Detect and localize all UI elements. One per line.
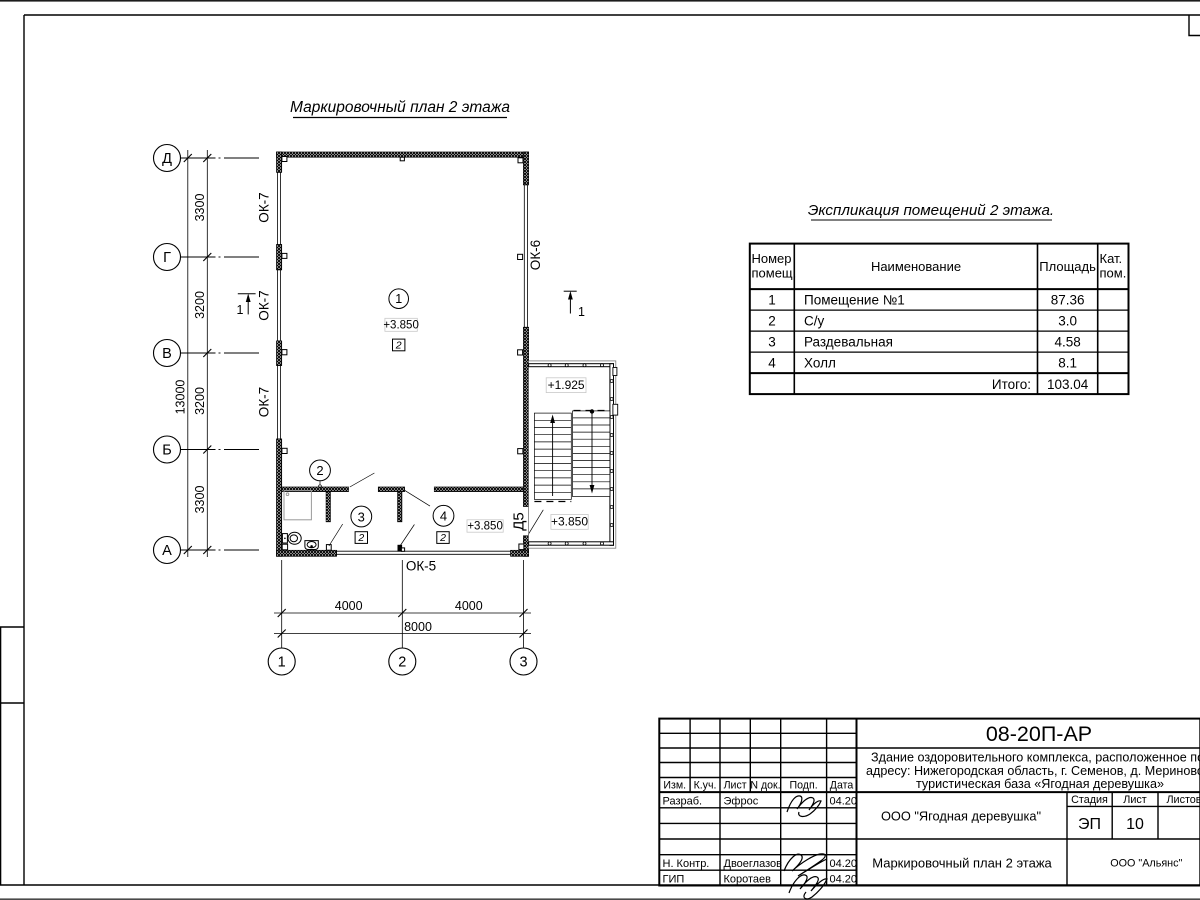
- svg-text:1: 1: [395, 292, 402, 306]
- svg-text:пом.: пом.: [1100, 266, 1127, 281]
- svg-text:2: 2: [395, 339, 402, 351]
- svg-text:Листов: Листов: [1166, 794, 1200, 806]
- svg-text:А: А: [162, 543, 172, 559]
- svg-text:04.20: 04.20: [830, 858, 858, 870]
- svg-text:3300: 3300: [193, 194, 207, 222]
- svg-text:3: 3: [519, 655, 527, 671]
- svg-text:Г: Г: [163, 250, 171, 266]
- svg-text:+1.925: +1.925: [548, 378, 585, 392]
- svg-text:+3.850: +3.850: [467, 521, 503, 533]
- svg-text:Двоеглазов: Двоеглазов: [724, 858, 783, 870]
- svg-text:1: 1: [578, 305, 585, 319]
- svg-text:Экспликация помещений 2 этажа.: Экспликация помещений 2 этажа.: [808, 202, 1054, 219]
- svg-text:Лист: Лист: [724, 780, 747, 792]
- svg-text:2: 2: [316, 463, 323, 478]
- svg-text:Стадия: Стадия: [1071, 794, 1108, 806]
- svg-text:ЭП: ЭП: [1078, 816, 1101, 833]
- svg-text:4.58: 4.58: [1054, 334, 1080, 349]
- svg-text:Холл: Холл: [804, 355, 836, 370]
- svg-text:N док.: N док.: [750, 780, 780, 792]
- svg-text:К.уч.: К.уч.: [694, 780, 717, 792]
- svg-text:туристическая база «Ягодная де: туристическая база «Ягодная деревушка»: [916, 777, 1164, 791]
- svg-text:8000: 8000: [404, 620, 432, 634]
- svg-text:1: 1: [237, 303, 244, 317]
- svg-text:3300: 3300: [193, 486, 207, 514]
- svg-text:+3.850: +3.850: [383, 319, 419, 331]
- svg-text:2: 2: [357, 532, 364, 544]
- svg-text:3200: 3200: [193, 387, 207, 415]
- svg-text:ОК-7: ОК-7: [257, 290, 272, 320]
- svg-text:04.20: 04.20: [830, 873, 858, 885]
- svg-text:2: 2: [768, 313, 776, 328]
- svg-text:Д5: Д5: [511, 512, 528, 531]
- svg-text:10: 10: [1126, 816, 1144, 833]
- svg-text:Изм.: Изм.: [663, 780, 686, 792]
- svg-text:Дата: Дата: [830, 780, 854, 792]
- svg-text:+3.850: +3.850: [551, 515, 588, 529]
- svg-text:ОК-5: ОК-5: [406, 559, 436, 574]
- svg-text:4: 4: [768, 355, 776, 370]
- svg-text:87.36: 87.36: [1051, 292, 1085, 307]
- svg-text:Итого:: Итого:: [992, 377, 1031, 392]
- svg-text:1: 1: [278, 655, 286, 671]
- svg-text:Номер: Номер: [752, 251, 792, 266]
- svg-text:Коротаев: Коротаев: [724, 873, 772, 885]
- svg-text:ГИП: ГИП: [663, 873, 685, 885]
- svg-text:Маркировочный план 2 этажа: Маркировочный план 2 этажа: [290, 99, 510, 116]
- svg-text:Д: Д: [162, 151, 172, 167]
- svg-text:3: 3: [768, 334, 776, 349]
- svg-text:С/у: С/у: [804, 313, 825, 328]
- svg-text:4: 4: [440, 509, 447, 524]
- svg-text:3200: 3200: [193, 291, 207, 319]
- svg-text:Наименование: Наименование: [871, 259, 961, 274]
- svg-text:Лист: Лист: [1123, 794, 1147, 806]
- svg-text:Эфрос: Эфрос: [724, 795, 759, 807]
- svg-text:2: 2: [439, 532, 446, 544]
- svg-text:ООО "Альянс": ООО "Альянс": [1110, 858, 1182, 870]
- svg-text:103.04: 103.04: [1047, 377, 1089, 392]
- svg-text:04.20: 04.20: [830, 795, 858, 807]
- svg-text:ООО "Ягодная деревушка": ООО "Ягодная деревушка": [881, 809, 1041, 824]
- svg-text:4000: 4000: [455, 599, 483, 613]
- svg-text:Н. Контр.: Н. Контр.: [663, 858, 710, 870]
- svg-text:Подп.: Подп.: [790, 780, 818, 792]
- svg-text:13000: 13000: [174, 380, 188, 415]
- svg-text:Здание оздоровительного компле: Здание оздоровительного комплекса, распо…: [871, 751, 1200, 765]
- svg-text:Помещение №1: Помещение №1: [804, 292, 905, 307]
- svg-text:ОК-7: ОК-7: [257, 192, 272, 222]
- svg-text:адресу: Нижегородская область,: адресу: Нижегородская область, г. Семено…: [866, 764, 1200, 778]
- svg-text:ОК-7: ОК-7: [257, 387, 272, 417]
- svg-text:3.0: 3.0: [1058, 313, 1077, 328]
- svg-text:Маркировочный план 2 этажа: Маркировочный план 2 этажа: [872, 856, 1052, 871]
- svg-text:Раздевальная: Раздевальная: [804, 334, 893, 349]
- svg-text:1: 1: [768, 292, 776, 307]
- svg-text:В: В: [162, 346, 172, 362]
- svg-text:Кат.: Кат.: [1100, 251, 1123, 266]
- svg-text:Б: Б: [162, 443, 172, 459]
- svg-text:8.1: 8.1: [1058, 355, 1077, 370]
- svg-text:Площадь: Площадь: [1039, 259, 1096, 274]
- svg-text:3: 3: [358, 509, 365, 524]
- svg-text:08-20П-АР: 08-20П-АР: [986, 722, 1092, 746]
- svg-text:помещ.: помещ.: [752, 266, 797, 281]
- svg-text:Разраб.: Разраб.: [663, 795, 703, 807]
- svg-text:ОК-6: ОК-6: [528, 240, 543, 270]
- svg-text:4000: 4000: [335, 599, 363, 613]
- svg-text:2: 2: [398, 655, 406, 671]
